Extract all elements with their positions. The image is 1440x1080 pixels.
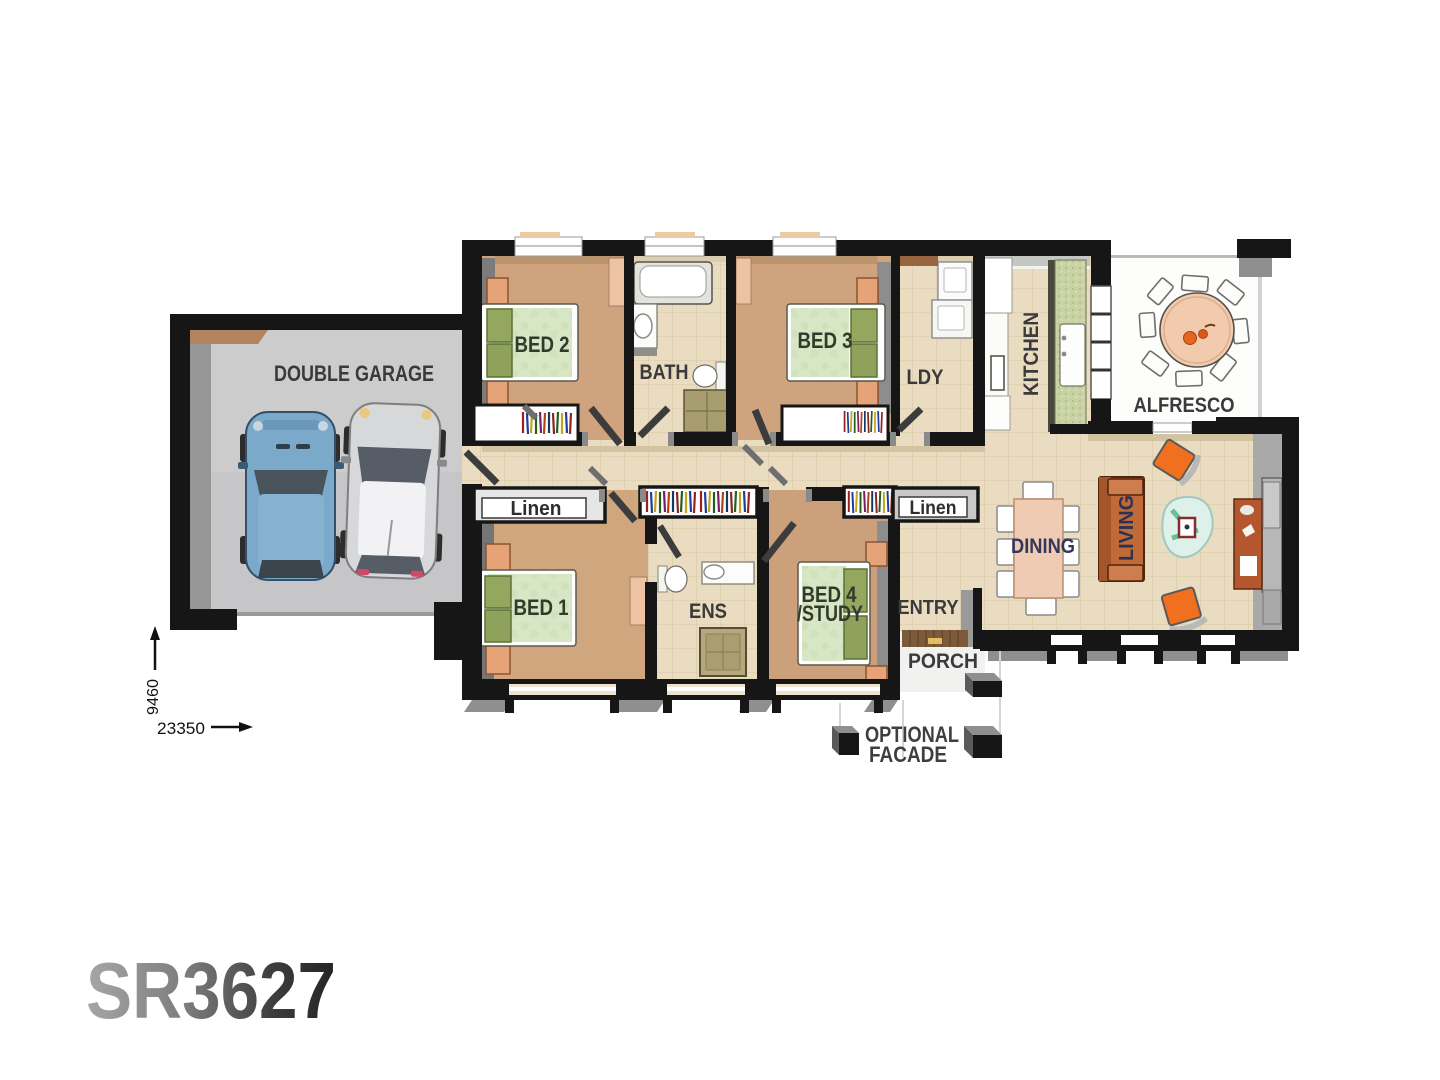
- svg-text:LIVING: LIVING: [1116, 495, 1138, 561]
- svg-text:PORCH: PORCH: [908, 650, 978, 673]
- svg-text:DINING: DINING: [1011, 535, 1075, 558]
- svg-text:BED 3: BED 3: [798, 328, 853, 353]
- svg-text:/STUDY: /STUDY: [797, 601, 863, 626]
- svg-text:BED 1: BED 1: [514, 595, 569, 620]
- svg-text:KITCHEN: KITCHEN: [1020, 312, 1043, 396]
- svg-text:23350: 23350: [157, 719, 205, 738]
- svg-text:Linen: Linen: [910, 498, 957, 519]
- svg-text:SR3627: SR3627: [86, 946, 336, 1035]
- svg-text:DOUBLE GARAGE: DOUBLE GARAGE: [274, 361, 434, 386]
- svg-text:Linen: Linen: [511, 498, 562, 520]
- svg-text:FACADE: FACADE: [869, 742, 947, 767]
- svg-text:ALFRESCO: ALFRESCO: [1134, 394, 1235, 417]
- svg-text:ENS: ENS: [689, 600, 727, 623]
- svg-text:BATH: BATH: [640, 361, 689, 384]
- svg-text:BED 2: BED 2: [515, 332, 570, 357]
- svg-text:ENTRY: ENTRY: [898, 597, 960, 619]
- svg-text:9460: 9460: [145, 679, 162, 715]
- svg-text:LDY: LDY: [907, 366, 944, 389]
